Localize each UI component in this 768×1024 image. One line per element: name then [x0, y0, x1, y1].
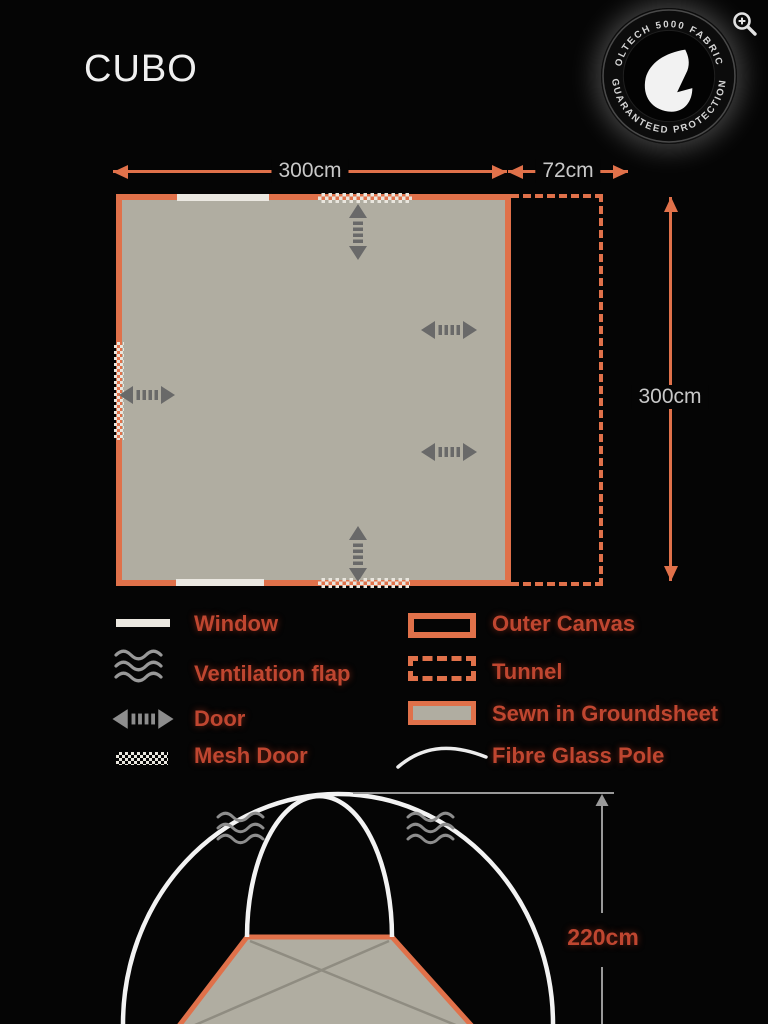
door-arrow-bottom	[347, 526, 369, 582]
dimension-height-label: 220cm	[565, 924, 641, 951]
dimension-main-depth: 300cm	[663, 197, 677, 581]
tent-side-view	[100, 785, 660, 1024]
dimension-main-width: 300cm	[113, 164, 507, 178]
door-arrow-left	[119, 384, 175, 406]
door-icon	[112, 707, 174, 731]
legend-label-outer-canvas: Outer Canvas	[492, 611, 635, 637]
legend-label-door: Door	[194, 706, 245, 732]
door-arrow-top	[347, 204, 369, 260]
legend-label-tunnel: Tunnel	[492, 659, 562, 685]
page-title: CUBO	[84, 48, 198, 91]
legend-label-window: Window	[194, 611, 278, 637]
tunnel-outline	[511, 194, 603, 586]
dimension-main-width-label: 300cm	[271, 159, 348, 183]
tent-spec-diagram: CUBO OLTECH 5000 FABRIC GUARANTEED PROTE…	[0, 0, 768, 1024]
main-room-groundsheet	[116, 194, 511, 586]
dimension-tunnel-width: 72cm	[508, 164, 628, 178]
front-panel-groundsheet	[172, 937, 480, 1024]
window-icon	[116, 619, 170, 627]
groundsheet-icon	[408, 701, 476, 725]
fibreglass-pole-icon	[396, 741, 488, 769]
ventilation-flap-icon	[114, 648, 168, 686]
dimension-tunnel-width-label: 72cm	[535, 159, 600, 183]
window-marker-top	[177, 194, 269, 201]
door-arrow-right-upper	[421, 319, 477, 341]
mesh-door-icon	[116, 752, 168, 765]
legend-label-groundsheet: Sewn in Groundsheet	[492, 701, 718, 727]
legend-label-mesh-door: Mesh Door	[194, 743, 308, 769]
mesh-door-marker-top	[318, 193, 412, 203]
inner-pole-arch	[247, 796, 392, 937]
legend-label-fibreglass-pole: Fibre Glass Pole	[492, 743, 664, 769]
outer-canvas-icon	[408, 613, 476, 638]
dimension-main-depth-label: 300cm	[631, 385, 708, 409]
fabric-badge: OLTECH 5000 FABRIC GUARANTEED PROTECTION	[601, 8, 737, 144]
door-arrow-right-lower	[421, 441, 477, 463]
tunnel-icon	[408, 656, 476, 681]
legend-label-ventilation-flap: Ventilation flap	[194, 661, 350, 687]
window-marker-bottom	[176, 579, 264, 586]
